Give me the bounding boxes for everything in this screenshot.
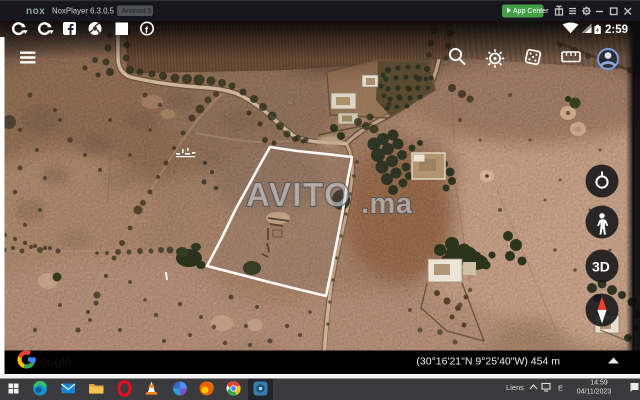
svg-text:App Center: App Center [513,8,549,15]
svg-text:14:59: 14:59 [590,380,608,387]
svg-text:Liens: Liens [506,383,524,392]
svg-text:E: E [558,384,563,393]
svg-text:2:59: 2:59 [605,24,628,36]
svg-text:.ma: .ma [361,188,413,220]
svg-text:(30°16'21"N 9°25'40"W) 454 m: (30°16'21"N 9°25'40"W) 454 m [416,356,560,368]
svg-text:AVITO: AVITO [246,176,351,213]
svg-text:NoxPlayer 6.3.0.5: NoxPlayer 6.3.0.5 [52,7,115,16]
svg-text:Android 5: Android 5 [122,8,152,15]
svg-text:04/11/2023: 04/11/2023 [577,389,612,396]
svg-text:3D: 3D [592,259,610,275]
svg-text:oogle: oogle [40,354,72,369]
svg-text:nox: nox [26,6,45,17]
